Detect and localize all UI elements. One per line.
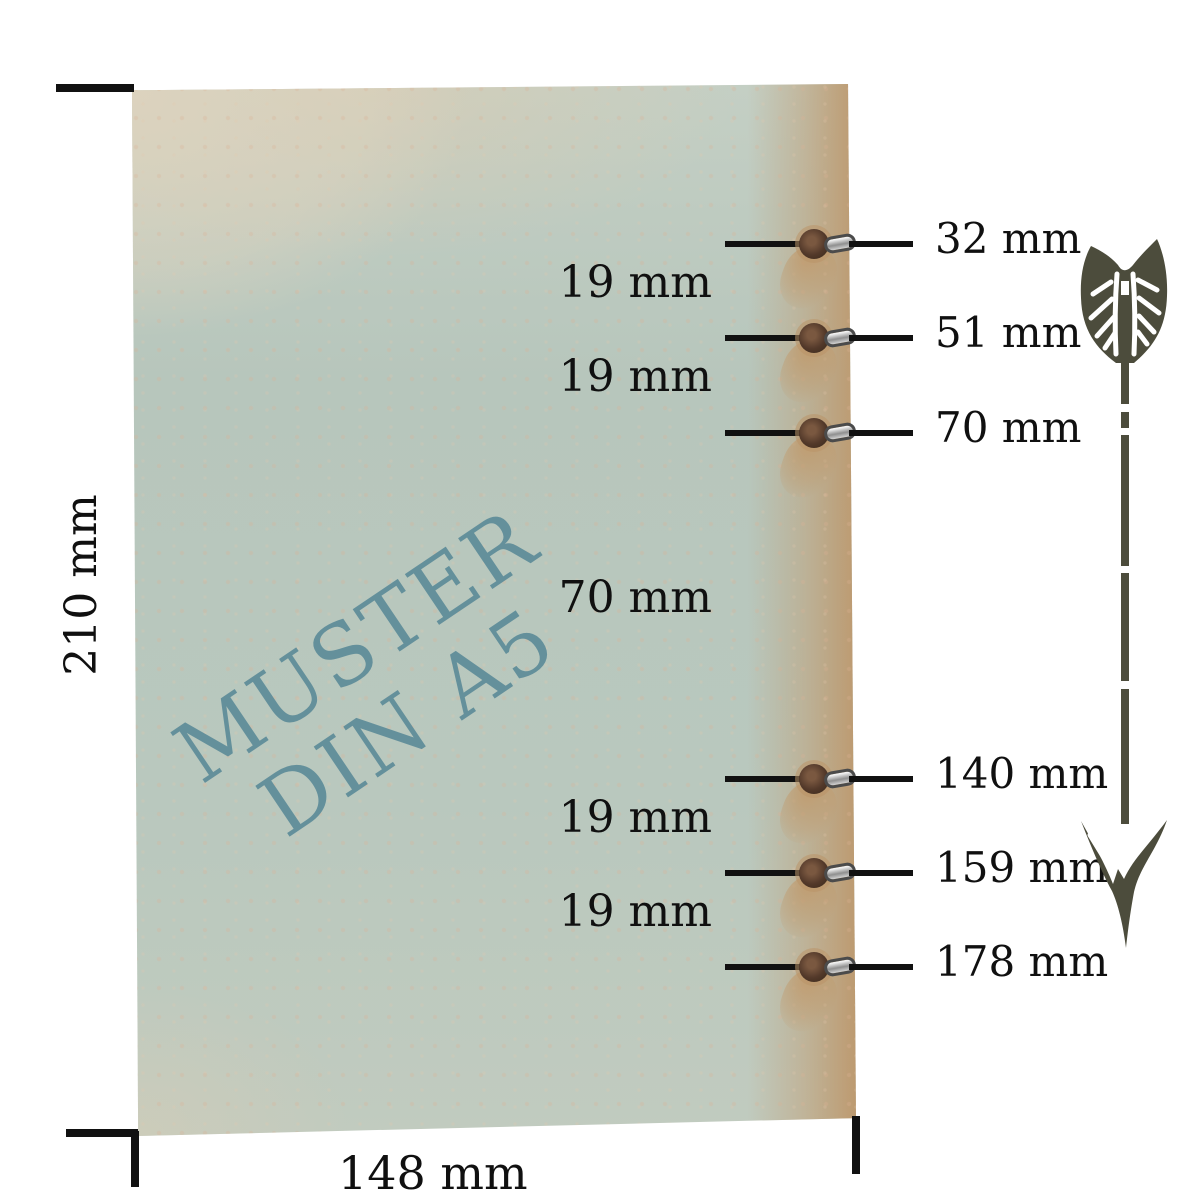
measure-line-right: [849, 335, 913, 341]
tick-bottom-left-horizontal: [66, 1129, 138, 1137]
measure-line-right: [849, 430, 913, 436]
tick-top-left: [56, 84, 134, 92]
measure-line-left: [725, 776, 805, 782]
measure-line-left: [725, 335, 805, 341]
tick-bottom-left-vertical: [131, 1131, 139, 1187]
hole-distance-label: 70 mm: [935, 402, 1081, 454]
gap-distance-label: 19 mm: [512, 350, 712, 404]
paper-watermark: MUSTER DIN A5: [82, 440, 683, 929]
gap-distance-label: 19 mm: [512, 256, 712, 310]
diagram-canvas: MUSTER DIN A5 210 mm 148 mm 32 mm51 mm70…: [0, 0, 1200, 1200]
measure-line-right: [849, 241, 913, 247]
measure-line-right: [849, 964, 913, 970]
gap-distance-label: 70 mm: [512, 571, 712, 625]
measure-line-right: [849, 776, 913, 782]
hole-distance-label: 32 mm: [935, 213, 1081, 265]
gap-distance-label: 19 mm: [512, 791, 712, 845]
gap-distance-label: 19 mm: [512, 885, 712, 939]
paper-width-label: 148 mm: [338, 1146, 528, 1200]
measure-line-right: [849, 870, 913, 876]
measure-line-left: [725, 964, 805, 970]
decorative-arrow-graphic: [1078, 236, 1178, 951]
paper-height-label: 210 mm: [55, 485, 109, 685]
hole-distance-label: 51 mm: [935, 307, 1081, 359]
measure-line-left: [725, 870, 805, 876]
tick-bottom-right-vertical: [852, 1116, 860, 1174]
measure-line-left: [725, 430, 805, 436]
measure-line-left: [725, 241, 805, 247]
